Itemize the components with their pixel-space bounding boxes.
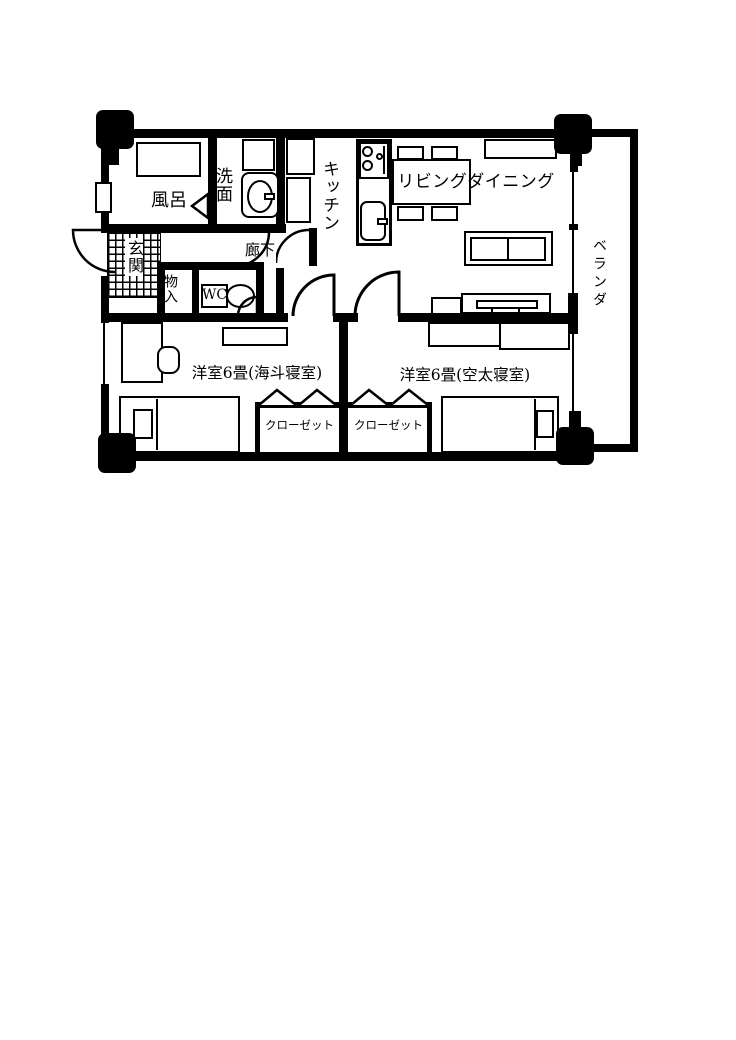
room-label-closet-right: クローゼット (350, 419, 427, 432)
room-label-living-dining: リビングダイニング (394, 173, 558, 193)
kitchen-cabinet (286, 177, 311, 223)
entrance-door-swing (70, 226, 117, 276)
room-label-storage: 物入 (163, 274, 177, 304)
floor-plan: 風呂 洗面 キッチン リビングダイニング 玄関 廊下 物入 WC ベランダ 洋室… (0, 0, 736, 1040)
room-label-bedroom-right: 洋室6畳(空太寝室) (389, 367, 541, 385)
wall-closet-left-side (255, 402, 260, 458)
dining-chair (431, 206, 458, 221)
wall-balcony-right (630, 129, 638, 452)
closet-bifold-icon (349, 388, 390, 406)
wall-top (110, 129, 572, 138)
sink-faucet (377, 218, 388, 225)
bath-window (95, 182, 112, 213)
wall-balcony-bottom (592, 444, 638, 452)
pillow (536, 410, 554, 438)
window-tick (569, 224, 578, 230)
bathtub (136, 142, 201, 177)
sofa-cushion (470, 237, 509, 261)
side-table (431, 297, 462, 315)
wall-closet-right-side (427, 402, 432, 458)
bed-divider (156, 399, 158, 450)
tv-base (491, 307, 520, 314)
washing-machine (242, 139, 275, 171)
refrigerator (286, 138, 315, 175)
room-label-washroom: 洗面 (213, 167, 230, 203)
window-living-balcony (572, 172, 574, 293)
wc-door-swing (236, 295, 260, 319)
bedroom-right-door-swing (352, 269, 402, 319)
closet-bifold-icon (257, 388, 298, 406)
dining-chair (431, 146, 458, 160)
shelf (499, 322, 570, 350)
closet-bifold-icon (389, 388, 430, 406)
window-left-bedroom (103, 323, 105, 384)
closet-bifold-icon (297, 388, 338, 406)
stove-burner (362, 146, 373, 157)
room-label-closet-left: クローゼット (261, 419, 338, 432)
room-label-bedroom-left: 洋室6畳(海斗寝室) (181, 365, 333, 383)
washbasin-faucet (264, 193, 275, 200)
pillow (133, 409, 153, 439)
dining-chair (397, 146, 424, 160)
desk-chair (157, 346, 180, 374)
pillar-bottom-right (556, 427, 594, 465)
pillar-bottom-left (98, 433, 136, 473)
stove-burner (362, 160, 373, 171)
room-label-bath: 風呂 (140, 191, 198, 212)
window-bedroom-balcony (572, 334, 574, 413)
sofa-cushion (507, 237, 546, 261)
room-label-kitchen: キッチン (320, 160, 337, 232)
kitchen-door-swing (276, 227, 312, 267)
stove-divider (383, 146, 385, 174)
room-label-entrance: 玄関 (125, 238, 143, 276)
shelf (222, 327, 288, 346)
wall-counter-shelf (484, 139, 557, 159)
wall-between-bedrooms (339, 313, 348, 461)
bedroom-left-door-swing (287, 272, 337, 320)
room-label-hallway: 廊下 (241, 242, 279, 259)
room-label-veranda: ベランダ (592, 238, 606, 310)
dining-chair (397, 206, 424, 221)
desk (428, 322, 501, 347)
room-label-wc: WC (201, 287, 228, 303)
stove-burner-small (376, 153, 383, 160)
pillar-top-right (554, 114, 592, 154)
pillar-top-left (96, 110, 134, 149)
wall-bedrooms-c (398, 313, 572, 322)
